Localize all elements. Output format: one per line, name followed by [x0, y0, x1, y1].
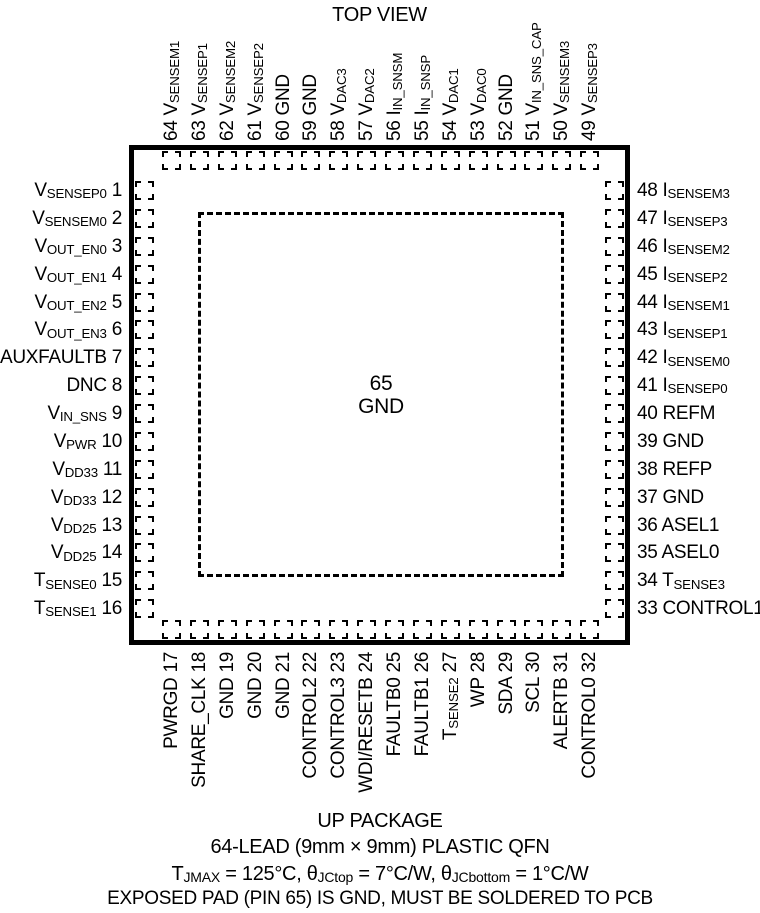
pin-label-12: VDD33 12 — [0, 487, 122, 508]
pin-label-7: AUXFAULTB 7 — [0, 347, 122, 368]
pin-label-48: 48 ISENSEM3 — [637, 180, 760, 201]
center-pin-name: GND — [358, 395, 404, 418]
pin-pad-59 — [301, 151, 320, 170]
package-desc-line: 64-LEAD (9mm × 9mm) PLASTIC QFN — [0, 836, 760, 858]
pin-label-55: 55 IIN_SNSP — [412, 0, 433, 141]
pin-label-60: 60 GND — [273, 0, 294, 141]
pin-label-40: 40 REFM — [637, 403, 760, 424]
exposed-pad-label: 65 GND — [198, 212, 564, 577]
pin-pad-17 — [162, 620, 181, 639]
pin-label-53: 53 VDAC0 — [468, 0, 489, 141]
pin-label-64: 64 VSENSEM1 — [161, 0, 182, 141]
pin-pad-35 — [605, 543, 624, 562]
pin-label-9: VIN_SNS 9 — [0, 403, 122, 424]
pin-label-3: VOUT_EN0 3 — [0, 236, 122, 257]
pin-label-56: 56 IIN_SNSM — [384, 0, 405, 141]
pin-label-21: GND 21 — [273, 652, 294, 797]
pin-pad-23 — [329, 620, 348, 639]
pin-label-16: TSENSE1 16 — [0, 598, 122, 619]
pin-label-18: SHARE_CLK 18 — [189, 652, 210, 797]
pin-pad-46 — [605, 237, 624, 256]
package-name-line: UP PACKAGE — [0, 810, 760, 832]
pin-pad-16 — [135, 599, 154, 618]
pin-pad-15 — [135, 571, 154, 590]
pin-label-2: VSENSEM0 2 — [0, 208, 122, 229]
pin-pad-57 — [357, 151, 376, 170]
pin-pad-3 — [135, 237, 154, 256]
thermal-specs-line: TJMAX = 125°C, θJCtop = 7°C/W, θJCbottom… — [0, 863, 760, 886]
pin-label-38: 38 REFP — [637, 459, 760, 480]
pin-label-11: VDD33 11 — [0, 459, 122, 480]
pin-pad-33 — [605, 599, 624, 618]
pin-label-24: WDI/RESETB 24 — [356, 652, 377, 797]
pin-pad-26 — [413, 620, 432, 639]
pin-label-20: GND 20 — [245, 652, 266, 797]
pin-label-58: 58 VDAC3 — [328, 0, 349, 141]
pin-label-31: ALERTB 31 — [551, 652, 572, 797]
pin-label-29: SDA 29 — [496, 652, 517, 797]
pin-pad-30 — [524, 620, 543, 639]
pin-pad-24 — [357, 620, 376, 639]
pin-pad-52 — [497, 151, 516, 170]
pin-label-22: CONTROL2 22 — [300, 652, 321, 797]
pin-label-42: 42 ISENSEM0 — [637, 347, 760, 368]
pin-pad-31 — [552, 620, 571, 639]
pin-pad-2 — [135, 209, 154, 228]
pin-pad-12 — [135, 488, 154, 507]
pin-pad-44 — [605, 293, 624, 312]
pin-pad-32 — [580, 620, 599, 639]
pin-label-59: 59 GND — [300, 0, 321, 141]
pin-label-1: VSENSEP0 1 — [0, 180, 122, 201]
pin-label-45: 45 ISENSEP2 — [637, 264, 760, 285]
pin-pad-22 — [301, 620, 320, 639]
pin-pad-45 — [605, 265, 624, 284]
pin-label-41: 41 ISENSEP0 — [637, 375, 760, 396]
pin-label-27: TSENSE2 27 — [440, 652, 461, 797]
pin-pad-55 — [413, 151, 432, 170]
pin-label-39: 39 GND — [637, 431, 760, 452]
pin-pad-48 — [605, 181, 624, 200]
pin-pad-61 — [246, 151, 265, 170]
pin-label-26: FAULTB1 26 — [412, 652, 433, 797]
pin-pad-39 — [605, 432, 624, 451]
pin-label-50: 50 VSENSEM3 — [551, 0, 572, 141]
pin-label-33: 33 CONTROL1 — [637, 598, 760, 619]
pin-pad-1 — [135, 181, 154, 200]
pin-label-15: TSENSE0 15 — [0, 570, 122, 591]
pin-pad-63 — [190, 151, 209, 170]
pin-label-51: 51 VIN_SNS_CAP — [523, 0, 544, 141]
pin-label-28: WP 28 — [468, 652, 489, 797]
pin-pad-5 — [135, 293, 154, 312]
pin-pad-9 — [135, 404, 154, 423]
pin-label-46: 46 ISENSEM2 — [637, 236, 760, 257]
pin-label-23: CONTROL3 23 — [328, 652, 349, 797]
pin-label-14: VDD25 14 — [0, 542, 122, 563]
pin-pad-25 — [385, 620, 404, 639]
pin-label-32: CONTROL0 32 — [579, 652, 600, 797]
pin-pad-62 — [218, 151, 237, 170]
pin-label-62: 62 VSENSEM2 — [217, 0, 238, 141]
pin-pad-54 — [441, 151, 460, 170]
pin-label-10: VPWR 10 — [0, 431, 122, 452]
pin-pad-37 — [605, 488, 624, 507]
pin-label-8: DNC 8 — [0, 375, 122, 396]
pin-label-4: VOUT_EN1 4 — [0, 264, 122, 285]
pin-pad-53 — [469, 151, 488, 170]
pin-pad-41 — [605, 376, 624, 395]
pin-pad-29 — [497, 620, 516, 639]
pin-label-6: VOUT_EN3 6 — [0, 319, 122, 340]
pin-pad-43 — [605, 320, 624, 339]
pin-pad-49 — [580, 151, 599, 170]
pin-label-44: 44 ISENSEM1 — [637, 292, 760, 313]
pin-pad-4 — [135, 265, 154, 284]
pin-label-54: 54 VDAC1 — [440, 0, 461, 141]
pin-label-63: 63 VSENSEP1 — [189, 0, 210, 141]
pin-label-34: 34 TSENSE3 — [637, 570, 760, 591]
pin-pad-8 — [135, 376, 154, 395]
pin-label-35: 35 ASEL0 — [637, 542, 760, 563]
pin-label-57: 57 VDAC2 — [356, 0, 377, 141]
pin-pad-14 — [135, 543, 154, 562]
pin-pad-60 — [274, 151, 293, 170]
pin-pad-38 — [605, 460, 624, 479]
pin-pad-20 — [246, 620, 265, 639]
pin-pad-51 — [524, 151, 543, 170]
pin-label-52: 52 GND — [496, 0, 517, 141]
pin-pad-34 — [605, 571, 624, 590]
pin-label-19: GND 19 — [217, 652, 238, 797]
pin-pad-13 — [135, 516, 154, 535]
pin-label-47: 47 ISENSEP3 — [637, 208, 760, 229]
pin-label-5: VOUT_EN2 5 — [0, 292, 122, 313]
pin-pad-42 — [605, 348, 624, 367]
pin-pad-28 — [469, 620, 488, 639]
pin-label-43: 43 ISENSEP1 — [637, 319, 760, 340]
pin-label-61: 61 VSENSEP2 — [245, 0, 266, 141]
exposed-pad-note-line: EXPOSED PAD (PIN 65) IS GND, MUST BE SOL… — [0, 888, 760, 909]
pin-pad-11 — [135, 460, 154, 479]
pin-pad-40 — [605, 404, 624, 423]
pin-pad-27 — [441, 620, 460, 639]
pin-label-13: VDD25 13 — [0, 515, 122, 536]
pin-label-17: PWRGD 17 — [161, 652, 182, 797]
qfn-pinout-diagram: TOP VIEW 65 GND VSENSEP0 1VSENSEM0 2VOUT… — [0, 0, 760, 913]
pin-label-25: FAULTB0 25 — [384, 652, 405, 797]
pin-pad-19 — [218, 620, 237, 639]
pin-pad-6 — [135, 320, 154, 339]
pin-pad-21 — [274, 620, 293, 639]
pin-pad-36 — [605, 516, 624, 535]
pin-pad-7 — [135, 348, 154, 367]
center-pin-number: 65 — [370, 372, 393, 395]
pin-pad-64 — [162, 151, 181, 170]
pin-label-36: 36 ASEL1 — [637, 515, 760, 536]
pin-pad-47 — [605, 209, 624, 228]
pin-label-49: 49 VSENSEP3 — [579, 0, 600, 141]
pin-pad-50 — [552, 151, 571, 170]
pin-pad-56 — [385, 151, 404, 170]
pin-label-37: 37 GND — [637, 487, 760, 508]
pin-pad-58 — [329, 151, 348, 170]
pin-label-30: SCL 30 — [523, 652, 544, 797]
pin-pad-10 — [135, 432, 154, 451]
pin-pad-18 — [190, 620, 209, 639]
